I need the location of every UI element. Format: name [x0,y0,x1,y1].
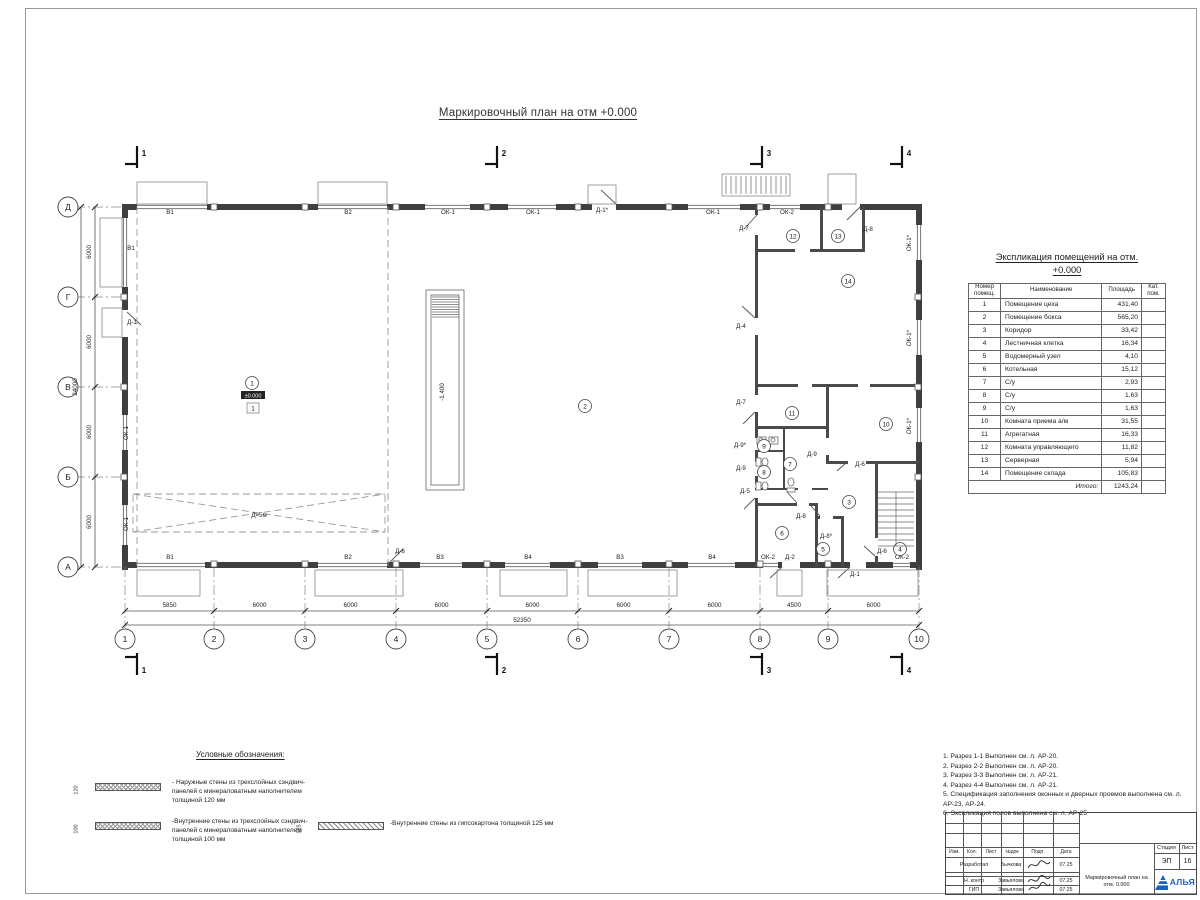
opening-label: Д-9* [734,442,747,449]
column-marker [825,204,831,210]
column-marker [757,204,763,210]
legend-text-3: -Внутренние стены из гипсокартона толщин… [390,820,560,829]
column-marker [575,561,581,567]
floor-type-value: 1 [251,406,255,413]
titleblock-role: Н. контр [947,876,1001,885]
dim-value: 6000 [343,602,358,609]
doc-title: Маркировочный план на отм. 0.000 [1081,870,1152,893]
column-marker [121,294,127,300]
opening-label: ОК-1 [706,209,720,216]
interior-walls [755,207,919,567]
stage-label: Стадия [1154,843,1179,853]
opening-label: ОК-1 [441,209,455,216]
section-mark-label: 2 [502,666,507,675]
column-marker [302,204,308,210]
col-axis-label: 7 [667,634,672,644]
section-mark-label: 4 [907,149,912,158]
col-axis-label: 6 [576,634,581,644]
opening-label: Д-8 [796,513,806,520]
room-number-label: 8 [762,469,766,476]
opening-label: ОК-1* [906,417,913,434]
row-axis-label: Г [66,292,71,302]
room-number-label: 9 [762,443,766,450]
company-logo: АЛЬЯ [1155,871,1195,893]
col-header-num: Номер помещ. [969,284,1001,298]
section-mark-label: 3 [767,666,772,675]
room-number-label: 13 [834,233,842,240]
col-axis-label: 8 [758,634,763,644]
dim-value: 6000 [434,602,449,609]
dim-value: 6000 [86,515,93,530]
dim-value: 6000 [86,425,93,440]
room-table-row: 14Помещение склада105,83 [969,467,1166,480]
titleblock-name: Завьялова [996,876,1026,885]
note-line: 1. Разрез 1-1 Выполнен см. л. АР-20. [943,752,1200,762]
logo-triangle-icon [1155,875,1168,890]
col-axis-label: 1 [123,634,128,644]
room-table-title: Экспликация помещений на отм. +0.000 [966,251,1168,276]
col-axis-label: 10 [914,634,924,644]
titleblock-name: Бычкова [996,857,1026,872]
room-table-row: 7С/у2,93 [969,376,1166,389]
dim-total-left: 24000 [72,378,79,396]
crane-zone: Д=5м [133,494,385,532]
opening-label: Д-8 [863,226,873,233]
opening-label: В2 [344,209,352,216]
titleblock-header-cell: №док [1001,847,1023,857]
titleblock-date: 07.25 [1053,876,1079,885]
opening-label: ОК-1 [123,516,130,530]
legend-text-2: -Внутренние стены из трехслойных сэндвич… [172,818,327,844]
room-number-label: 4 [898,546,902,553]
opening-label: В3 [436,554,444,561]
row-axis-label: А [65,562,71,572]
column-marker [121,384,127,390]
column-marker [575,204,581,210]
room-number-label: 1 [250,380,254,387]
room-number-label: 10 [882,421,890,428]
room-table-row: 11Агрегатная16,33 [969,428,1166,441]
legend-text-1: - Наружные стены из трехслойных сэндвич-… [172,779,324,805]
column-marker [302,561,308,567]
opening-label: В1 [166,554,174,561]
row-axis-label: Б [65,472,71,482]
opening-label: Д-5 [740,488,750,495]
col-axis-label: 3 [303,634,308,644]
legend-dim-1: 120 [74,785,80,794]
section-mark-label: 1 [142,149,147,158]
opening-label: В3 [616,554,624,561]
room-table-row: 8С/у1,63 [969,389,1166,402]
section-mark-label: 2 [502,149,507,158]
opening-label: Д-9 [807,451,817,458]
signature-icon [1026,874,1052,893]
room-table-total: Итого:1243,24 [969,480,1166,493]
opening-label: Д-6 [395,548,405,555]
column-marker [915,384,921,390]
column-marker [393,561,399,567]
col-header-cat: Кат. пом. [1142,284,1166,298]
sheet-label: Лист [1179,843,1196,853]
opening-label: ОК-2 [761,554,775,561]
opening-label: ОК-1 [526,209,540,216]
room-table-row: 3Коридор33,42 [969,324,1166,337]
titleblock-date: 07.25 [1053,857,1079,872]
legend-dim-3: 125 [297,824,303,833]
column-marker [915,294,921,300]
titleblock-header-cell: Дата [1053,847,1079,857]
room-table: Экспликация помещений на отм. +0.000 Ном… [966,251,1168,494]
opening-label: Д-1* [596,207,609,214]
dim-total-bottom: 52350 [513,617,531,624]
wall-symbol-interior [95,822,161,830]
room-number-label: 6 [780,530,784,537]
opening-label: ОК-1* [906,329,913,346]
col-axis-label: 5 [485,634,490,644]
dim-value: 6000 [86,335,93,350]
column-marker [484,204,490,210]
legend-title: Условные обозначения: [196,750,285,759]
opening-label: В1 [166,209,174,216]
column-marker [915,474,921,480]
note-line: 3. Разрез 3-3 Выполнен см. л. АР-21. [943,771,1200,781]
column-marker [666,204,672,210]
room-table-row: 1Помещение цеха431,40 [969,298,1166,311]
column-marker [484,561,490,567]
room-table-row: 2Помещение бокса565,20 [969,311,1166,324]
signature-icon [1026,859,1052,871]
drawing-sheet: Маркировочный план на отм +0.000 [0,0,1200,900]
opening-label: Д-8* [820,533,833,540]
row-axis-label: В [65,382,71,392]
sheet-value: 16 [1179,853,1196,869]
column-marker [393,204,399,210]
opening-label: ОК-2 [780,209,794,216]
opening-label: Д-7 [739,225,749,232]
opening-label: Д-7 [736,399,746,406]
section-mark-label: 3 [767,149,772,158]
column-marker [825,561,831,567]
notes-list: 1. Разрез 1-1 Выполнен см. л. АР-20.2. Р… [943,752,1200,819]
column-marker [666,561,672,567]
pit-level-label: -1.400 [439,383,446,401]
level-mark: ±0.000 1 [241,391,265,413]
opening-label: ОК-1 [123,425,130,439]
room-table-row: 5Водомерный узел4,10 [969,350,1166,363]
titleblock-header-cell: Подп. [1023,847,1053,857]
column-marker [211,561,217,567]
wall-symbol-exterior [95,783,161,791]
dim-value: 6000 [707,602,722,609]
level-mark-value: ±0.000 [245,393,262,399]
titleblock-role: Разработал [947,857,1001,872]
room-number-label: 11 [789,410,796,417]
opening-label: Д-6 [877,548,887,555]
opening-label: В1 [127,245,135,252]
opening-label: Д-2 [785,554,795,561]
opening-label: Д-1 [127,319,137,326]
dim-value: 6000 [86,245,93,260]
opening-label: В2 [344,554,352,561]
dim-value: 5850 [162,602,177,609]
room-table-row: 12Комната управляющего11,82 [969,441,1166,454]
room-number-label: 3 [847,499,851,506]
col-header-area: Площадь [1102,284,1142,298]
col-axis-label: 4 [394,634,399,644]
section-mark-label: 1 [142,666,147,675]
col-axis-label: 2 [212,634,217,644]
note-line: 4. Разрез 4-4 Выполнен см. л. АР-21. [943,781,1200,791]
dim-value: 4500 [787,602,802,609]
room-number-label: 5 [821,546,825,553]
legend-dim-2: 100 [74,824,80,833]
wall-symbol-gypsum [318,822,384,830]
room-table-row: 4Лестничная клетка16,34 [969,337,1166,350]
note-line: 2. Разрез 2-2 Выполнен см. л. АР-20. [943,762,1200,772]
room-table-body: 1Помещение цеха431,402Помещение бокса565… [969,298,1166,493]
room-number-label: 12 [789,233,797,240]
col-axis-label: 9 [826,634,831,644]
titleblock-date: 07.25 [1053,885,1079,894]
titleblock-header-cell: Кол. [963,847,981,857]
title-block: Стадия Лист ЭП 16 Маркировочный план на … [945,812,1197,895]
dim-value: 6000 [616,602,631,609]
room-table-row: 6Котельная15,12 [969,363,1166,376]
room-number-label: 14 [844,278,852,285]
note-line: 5. Спецификация заполнения оконных и две… [943,790,1200,809]
room-number-label: 2 [583,403,587,410]
titleblock-role: ГИП [947,885,1001,894]
dim-value: 6000 [525,602,540,609]
opening-label: В4 [708,554,716,561]
opening-label: В4 [524,554,532,561]
row-axis-label: Д [65,202,71,212]
column-marker [211,204,217,210]
room-table-grid: Номер помещ. Наименование Площадь Кат. п… [968,283,1166,493]
column-marker [757,561,763,567]
room-table-row: 13Серверная5,94 [969,454,1166,467]
dim-value: 6000 [252,602,267,609]
titleblock-name: Завьялова [996,885,1026,894]
column-marker [121,474,127,480]
titleblock-header-cell: Лист [981,847,1001,857]
titleblock-header-cell: Изм. [946,847,963,857]
crane-zone-label: Д=5м [251,512,267,519]
opening-label: Д-4 [736,323,746,330]
opening-label: Д-6 [855,461,865,468]
stage-value: ЭП [1154,853,1179,869]
inspection-pit: -1.400 [426,290,464,490]
dim-value: 6000 [866,602,881,609]
room-number-label: 7 [788,461,792,468]
opening-label: Д-9 [736,465,746,472]
logo-text: АЛЬЯ [1170,877,1195,887]
col-header-name: Наименование [1001,284,1102,298]
opening-label: Д-1 [850,571,860,578]
opening-label: ОК-1* [906,234,913,251]
section-mark-label: 4 [907,666,912,675]
room-table-row: 10Комната приема а/м31,55 [969,415,1166,428]
room-table-row: 9С/у1,63 [969,402,1166,415]
